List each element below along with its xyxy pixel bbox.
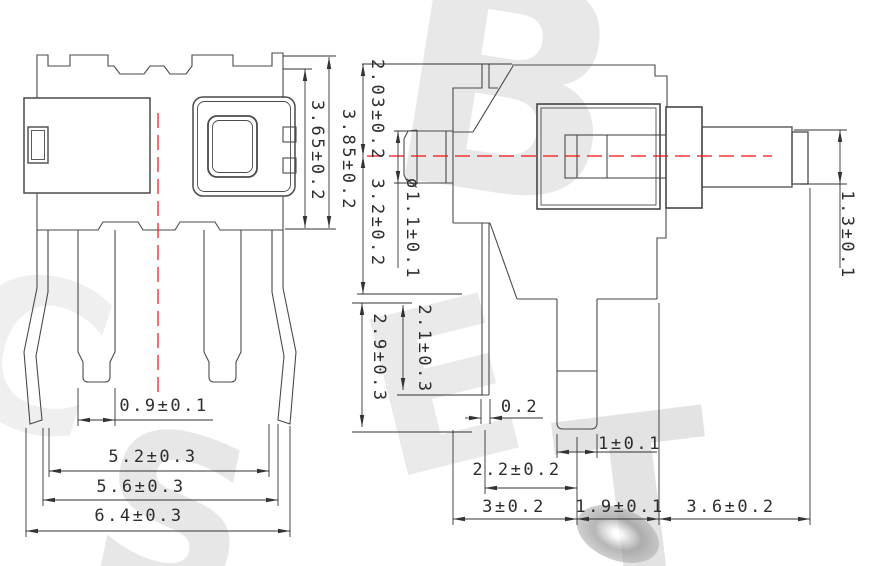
front-right-clip-bottom	[283, 158, 296, 173]
front-housing-inner	[198, 102, 291, 192]
front-left-block	[24, 98, 150, 193]
front-leg-right	[272, 230, 296, 424]
dim-label-side-base-to-foot: 2.9±0.3	[369, 313, 389, 402]
centerlines	[158, 113, 772, 397]
dim-label-side-foot-width: 1±0.1	[598, 434, 662, 454]
dim-label-side-plunger-length: 3.6±0.2	[686, 497, 775, 517]
dim-label-front-span-inner: 5.2±0.3	[108, 447, 197, 467]
front-pin-right	[204, 230, 241, 382]
side-top-left-profile	[453, 64, 498, 223]
dim-label-side-boss-diameter: ø1.1±0.1	[402, 178, 422, 280]
front-right-clip-top	[283, 127, 296, 142]
dim-label-side-pin-length: 2.1±0.3	[414, 304, 434, 393]
side-top-chamfer	[473, 66, 513, 132]
dim-label-front-height-outer: 3.85±0.2	[338, 109, 358, 211]
dim-label-side-body-depth: 3±0.2	[482, 497, 546, 517]
front-button-inner	[213, 121, 253, 173]
side-top-edge	[512, 65, 667, 107]
front-leg-left	[24, 230, 48, 424]
dim-label-front-height-inner: 3.65±0.2	[307, 100, 327, 202]
dim-label-side-top-to-center: 2.03±0.2	[367, 59, 387, 161]
side-foot	[557, 299, 597, 429]
front-pin-left	[78, 230, 115, 382]
side-boss-flange	[404, 130, 417, 184]
side-plunger-shaft	[702, 127, 792, 187]
dim-label-side-pin-to-foot: 2.2±0.2	[472, 460, 561, 480]
dim-label-front-span-outer: 6.4±0.3	[94, 506, 183, 526]
technical-drawing: B E S T C	[0, 0, 869, 566]
dim-label-front-span-mid: 5.6±0.3	[96, 477, 185, 497]
dim-label-side-center-to-base: 3.2±0.2	[367, 178, 387, 267]
front-body-top-edge	[37, 53, 283, 98]
side-view	[404, 64, 808, 429]
side-plunger-tip	[792, 132, 808, 184]
dim-label-side-pin-thickness: 0.2	[501, 397, 539, 417]
front-left-block-slot-inner	[32, 131, 45, 160]
front-button-outer	[208, 116, 257, 177]
dim-label-side-plunger-height: 1.3±0.1	[837, 190, 857, 279]
side-bezel	[666, 107, 702, 208]
dim-label-front-pin-width: 0.9±0.1	[119, 396, 208, 416]
side-boss-neck	[404, 131, 453, 183]
front-view	[24, 53, 296, 424]
front-body-bottom-edge	[37, 193, 283, 230]
dim-label-side-step-depth: 1.9±0.1	[575, 497, 664, 517]
side-bottom-profile	[453, 208, 666, 299]
front-left-block-slot	[28, 127, 48, 163]
side-pin	[482, 223, 489, 395]
